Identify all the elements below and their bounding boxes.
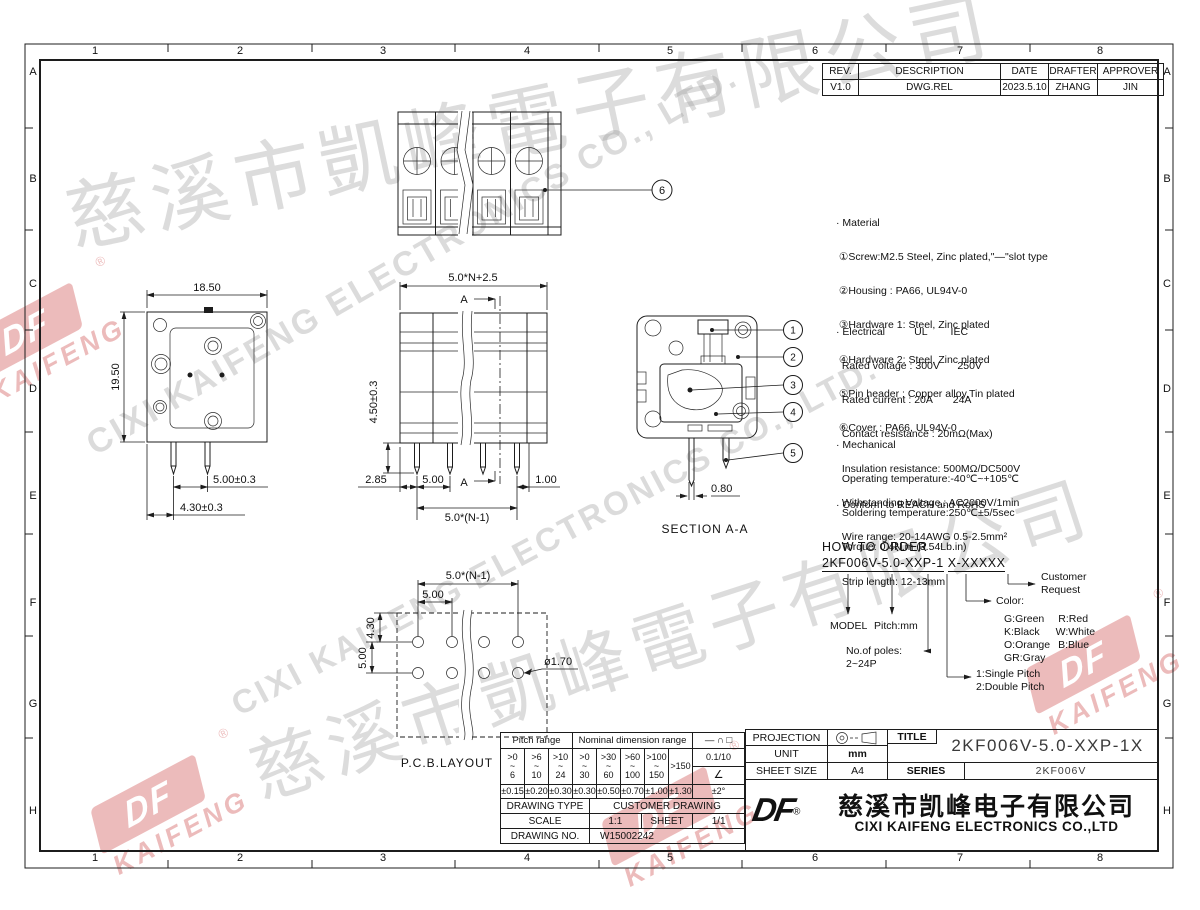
order-model-label: MODEL (830, 620, 867, 632)
range-cell: >150 (669, 749, 693, 785)
section-label: SECTION A-A (661, 522, 748, 536)
section-view: 1 2 3 4 5 0.80 SECTION A-A (637, 316, 803, 536)
order-double-pitch: 2:Double Pitch (976, 681, 1044, 693)
zone-right-f: F (1157, 597, 1177, 609)
range-cell: >10 ~ 24 (549, 749, 573, 785)
section-mark-a-bottom: A (460, 477, 468, 489)
zone-bottom-4: 4 (517, 852, 537, 864)
angle-symbol: ∠ (693, 767, 744, 784)
date-header: DATE (1001, 64, 1049, 80)
range-cell: >60 ~ 100 (621, 749, 645, 785)
ratio-tolerance: 0.1/10 (693, 749, 744, 767)
rev-header: REV. (823, 64, 859, 80)
svg-text:4: 4 (790, 408, 796, 419)
dim-span: 5.0*(N-1) (445, 512, 490, 524)
sheet-size-label: SHEET SIZE (745, 762, 828, 780)
tol-cell: ±0.15 (501, 785, 525, 799)
projection-symbol (827, 729, 888, 746)
zone-left-a: A (23, 66, 43, 78)
compliance-note: · Conform to REACH and RoHS (836, 500, 985, 511)
sheet-value: 1/1 (693, 814, 745, 829)
unit-label: UNIT (745, 745, 828, 763)
angle-tolerance: ±2° (693, 785, 745, 799)
dim-total-width: 5.0*N+2.5 (448, 272, 497, 284)
zone-top-2: 2 (230, 45, 250, 57)
order-code-main: 2KF006V-5.0-XXP-1 (822, 556, 944, 572)
tol-cell: ±0.30 (573, 785, 597, 799)
zone-right-c: C (1157, 278, 1177, 290)
order-poles-label: No.of poles: (846, 645, 902, 657)
order-title: HOW TO ORDER (822, 541, 928, 553)
title-block: PROJECTION UNIT mm SHEET SIZE A4 TITLE 2… (745, 729, 1158, 851)
approver-value: JIN (1098, 80, 1164, 96)
drawing-no-value: W15002242 (590, 829, 745, 844)
tol-cell: ±0.50 (597, 785, 621, 799)
first-angle-projection-icon (833, 731, 883, 745)
pcb-dim-row1: 4.30 (365, 617, 377, 638)
zone-right-g: G (1157, 698, 1177, 710)
drawing-type-label: DRAWING TYPE (501, 799, 590, 814)
material-title: · Material (836, 218, 1048, 229)
scale-label: SCALE (501, 814, 590, 829)
zone-bottom-7: 7 (950, 852, 970, 864)
drawing-title: 2KF006V-5.0-XXP-1X (937, 729, 1158, 763)
date-value: 2023.5.10 (1001, 80, 1049, 96)
zone-bottom-6: 6 (805, 852, 825, 864)
drafter-header: DRAFTER (1049, 64, 1098, 80)
order-color-list: G:GreenR:Red K:BlackW:White O:OrangeB:Bl… (1004, 613, 1095, 665)
svg-text:1: 1 (790, 326, 796, 337)
sheet-label: SHEET (641, 814, 693, 829)
zone-left-d: D (23, 383, 43, 395)
range-cell: >0 ~ 30 (573, 749, 597, 785)
zone-top-8: 8 (1090, 45, 1110, 57)
zone-bottom-5: 5 (660, 852, 680, 864)
engineering-drawing-sheet: 慈溪市凱峰電子有限公司 CIXI KAIFENG ELECTRONICS CO.… (0, 0, 1200, 910)
zone-bottom-3: 3 (373, 852, 393, 864)
zone-left-f: F (23, 597, 43, 609)
geometry-symbols: — ∩ □ (693, 733, 745, 749)
zone-top-3: 3 (373, 45, 393, 57)
svg-text:2: 2 (790, 353, 796, 364)
zone-top-4: 4 (517, 45, 537, 57)
order-single-pitch: 1:Single Pitch (976, 668, 1040, 680)
svg-text:5: 5 (790, 449, 796, 460)
tol-cell: ±0.70 (621, 785, 645, 799)
dim-1-00: 1.00 (535, 474, 556, 486)
range-cell: >0 ~ 6 (501, 749, 525, 785)
description-header: DESCRIPTION (859, 64, 1001, 80)
tol-cell: ±0.20 (525, 785, 549, 799)
zone-top-1: 1 (85, 45, 105, 57)
drawing-no-label: DRAWING NO. (501, 829, 590, 844)
zone-right-e: E (1157, 490, 1177, 502)
series-value: 2KF006V (964, 762, 1158, 780)
zone-left-h: H (23, 805, 43, 817)
order-customer-2: Request (1041, 584, 1080, 596)
dim-4-50-03: 4.50±0.3 (368, 381, 380, 424)
sheet-size-value: A4 (827, 762, 888, 780)
rear-view: 5.0*N+2.5 A 4.50±0.3 2.85 5. (358, 272, 560, 524)
zone-top-7: 7 (950, 45, 970, 57)
revision-table: REV. DESCRIPTION DATE DRAFTER APPROVER V… (822, 63, 1164, 96)
unit-value: mm (827, 745, 888, 763)
pcb-dim-pitch: 5.00 (422, 589, 443, 601)
zone-top-6: 6 (805, 45, 825, 57)
zone-right-d: D (1157, 383, 1177, 395)
dim-5-00: 5.00 (422, 474, 443, 486)
zone-left-g: G (23, 698, 43, 710)
electrical-title: · Electrical UL IEC (836, 327, 1020, 338)
company-logo: DF® (753, 791, 800, 829)
order-customer-1: Customer (1041, 571, 1087, 583)
tol-cell: ±0.30 (549, 785, 573, 799)
projection-label: PROJECTION (745, 729, 828, 746)
dim-19-50: 19.50 (110, 363, 122, 391)
zone-right-h: H (1157, 805, 1177, 817)
zone-bottom-1: 1 (85, 852, 105, 864)
svg-text:3: 3 (790, 381, 796, 392)
side-view: 18.50 19.50 5.00±0.3 (110, 282, 268, 520)
zone-bottom-8: 8 (1090, 852, 1110, 864)
approver-header: APPROVER (1098, 64, 1164, 80)
pcb-label: P.C.B.LAYOUT (401, 756, 493, 770)
zone-left-c: C (23, 278, 43, 290)
df-logo-icon: DF (750, 791, 797, 829)
order-code-suffix: X-XXXXX (948, 556, 1006, 572)
drafter-value: ZHANG (1049, 80, 1098, 96)
company-name-cn: 慈溪市凯峰电子有限公司 (815, 787, 1158, 823)
range-cell: >100 ~ 150 (645, 749, 669, 785)
order-color-label: Color: (996, 595, 1024, 607)
range-cell: >30 ~ 60 (597, 749, 621, 785)
nominal-range-header: Nominal dimension range (573, 733, 693, 749)
front-view: 6 (398, 110, 672, 237)
order-pitch-label: Pitch:mm (874, 620, 918, 632)
zone-top-5: 5 (660, 45, 680, 57)
pcb-dim-hole: ø1.70 (544, 656, 572, 668)
tol-cell: ±1.30 (669, 785, 693, 799)
dim-2-85: 2.85 (365, 474, 386, 486)
dim-5-00-03: 5.00±0.3 (213, 474, 256, 486)
dim-4-30-03: 4.30±0.3 (180, 502, 223, 514)
rev-value: V1.0 (823, 80, 859, 96)
section-callouts: 1 2 3 4 5 (688, 321, 803, 463)
series-label: SERIES (887, 762, 965, 780)
scale-value: 1:1 (590, 814, 642, 829)
tolerance-table: Pitch range Nominal dimension range — ∩ … (500, 732, 745, 799)
order-code: 2KF006V-5.0-XXP-1 X-XXXXX (822, 557, 1005, 569)
registered-mark: ® (793, 807, 800, 818)
drawing-type-value: CUSTOMER DRAWING (590, 799, 745, 814)
callout-6: 6 (659, 185, 665, 197)
zone-right-b: B (1157, 173, 1177, 185)
pcb-dim-row2: 5.00 (357, 647, 369, 668)
section-mark-a-top: A (460, 294, 468, 306)
description-value: DWG.REL (859, 80, 1001, 96)
mechanical-title: · Mechanical (836, 440, 1019, 451)
tol-cell: ±1.00 (645, 785, 669, 799)
dim-0-80: 0.80 (711, 483, 732, 495)
mechanical-notes: · Mechanical Operating temperature:-40℃~… (836, 417, 1019, 611)
range-cell: >6 ~ 10 (525, 749, 549, 785)
zone-bottom-2: 2 (230, 852, 250, 864)
pcb-dim-span: 5.0*(N-1) (446, 570, 491, 582)
title-label: TITLE (887, 729, 937, 744)
zone-left-b: B (23, 173, 43, 185)
order-poles-range: 2~24P (846, 658, 877, 670)
drawing-info-table: DRAWING TYPE CUSTOMER DRAWING SCALE 1:1 … (500, 798, 745, 844)
company-name-en: CIXI KAIFENG ELECTRONICS CO.,LTD (815, 819, 1158, 834)
pitch-range-header: Pitch range (501, 733, 573, 749)
dim-18-50: 18.50 (193, 282, 221, 294)
zone-left-e: E (23, 490, 43, 502)
